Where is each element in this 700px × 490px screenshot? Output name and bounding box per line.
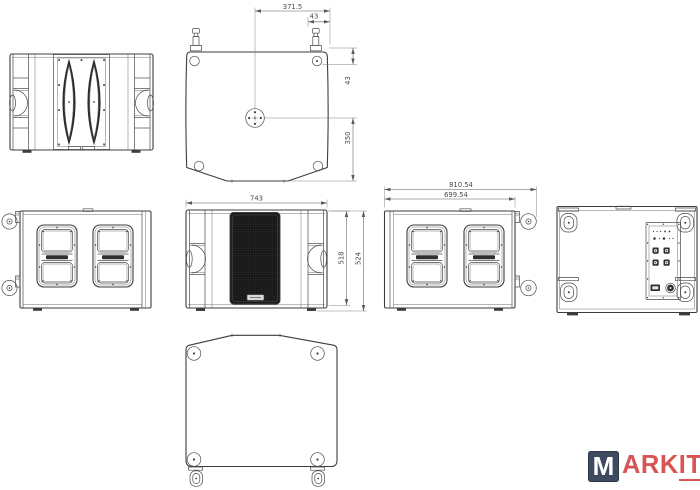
foot (132, 150, 141, 153)
markit-logo-m-letter: M (593, 451, 615, 482)
foot (494, 308, 503, 311)
mounting-point (311, 453, 325, 467)
caster (2, 276, 20, 296)
foot (307, 308, 316, 311)
dimension-label: 810.54 (449, 181, 473, 189)
speaker-grille (230, 213, 280, 305)
handle-assembly (464, 225, 504, 287)
mounting-point (311, 347, 325, 361)
right-rail (301, 211, 327, 308)
foot (23, 150, 32, 153)
rear-view (557, 206, 697, 315)
markit-logo-ark: ARK (622, 451, 679, 479)
handle-assembly (37, 225, 77, 287)
dimension-label: 699.54 (444, 191, 468, 199)
top-left-view (10, 54, 154, 153)
foot (567, 313, 578, 316)
dimension-label: 43 (344, 76, 352, 85)
caster (559, 278, 579, 302)
led-indicators (653, 231, 674, 240)
caster (515, 212, 536, 230)
pole-mount (246, 109, 265, 128)
rigging-pin-right (310, 29, 321, 51)
caster (515, 276, 536, 296)
mounting-point (187, 347, 201, 361)
markit-logo-it: IT (679, 451, 700, 481)
caster (189, 467, 203, 486)
speakon-connectors (653, 248, 670, 266)
top-view-dimensions: 371.5 43 43 350 (255, 3, 357, 181)
left-rail (186, 211, 212, 308)
bottom-view (186, 334, 337, 487)
caster (559, 208, 579, 232)
speaker-orthographic-drawing: 371.5 43 43 350 (0, 0, 700, 490)
foot (397, 308, 406, 311)
foot (33, 308, 42, 311)
left-side-view (2, 209, 151, 311)
handle-assembly (407, 225, 447, 287)
markit-logo-mark: M (588, 451, 619, 482)
left-rail (10, 55, 36, 150)
caster (2, 212, 20, 230)
caster (676, 208, 696, 232)
amp-panel (646, 223, 681, 300)
mounting-point (187, 453, 201, 467)
top-view: 371.5 43 43 350 (186, 3, 357, 183)
foot (679, 313, 690, 316)
handle-assembly (93, 225, 133, 287)
rigging-hole (190, 56, 200, 66)
dimension-label: 371.5 (283, 3, 302, 11)
slot-port-baffle (54, 55, 110, 150)
right-rail (128, 55, 154, 150)
technical-drawing-sheet: 371.5 43 43 350 (0, 0, 700, 490)
rigging-hole (194, 161, 204, 171)
dimension-label: 350 (344, 132, 352, 145)
right-side-view: 810.54 699.54 (385, 181, 537, 311)
markit-logo-text: ARKIT (622, 451, 700, 480)
dimension-label: 43 (310, 13, 319, 21)
front-view: 743 518 524 (186, 194, 367, 311)
rigging-pin-left (191, 29, 202, 51)
dimension-label: 743 (250, 194, 263, 202)
foot (196, 308, 205, 311)
dimension-label: 524 (355, 252, 363, 265)
foot (130, 308, 139, 311)
rigging-hole (313, 161, 323, 171)
caster (311, 467, 325, 486)
dimension-label: 518 (338, 252, 346, 265)
power-inlet (651, 283, 676, 293)
markit-logo: M ARKIT (588, 451, 700, 482)
